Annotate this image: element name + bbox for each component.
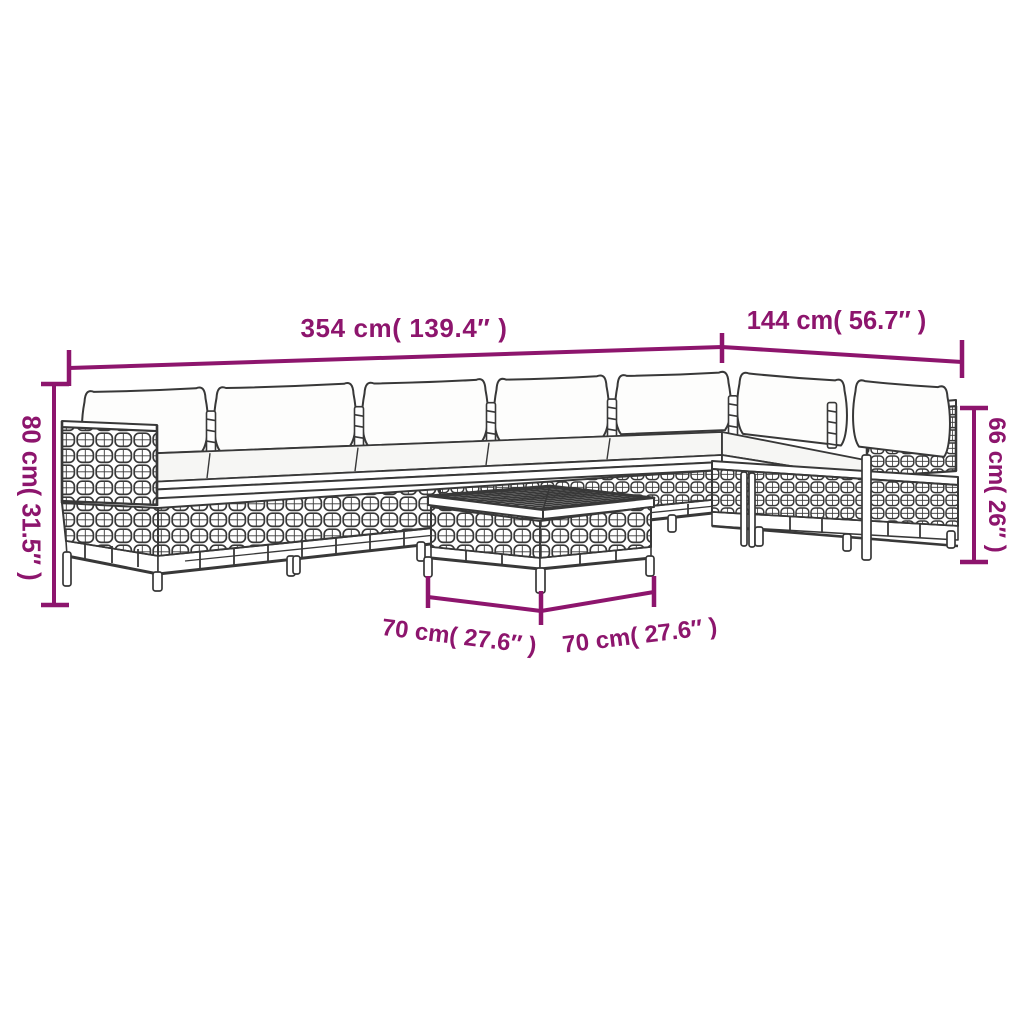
svg-text:144 cm( 56.7″ ): 144 cm( 56.7″ ): [747, 307, 926, 335]
svg-text:66 cm( 26″ ): 66 cm( 26″ ): [983, 417, 1010, 553]
svg-text:80 cm( 31.5″ ): 80 cm( 31.5″ ): [16, 415, 44, 580]
svg-text:354 cm( 139.4″ ): 354 cm( 139.4″ ): [300, 313, 507, 343]
